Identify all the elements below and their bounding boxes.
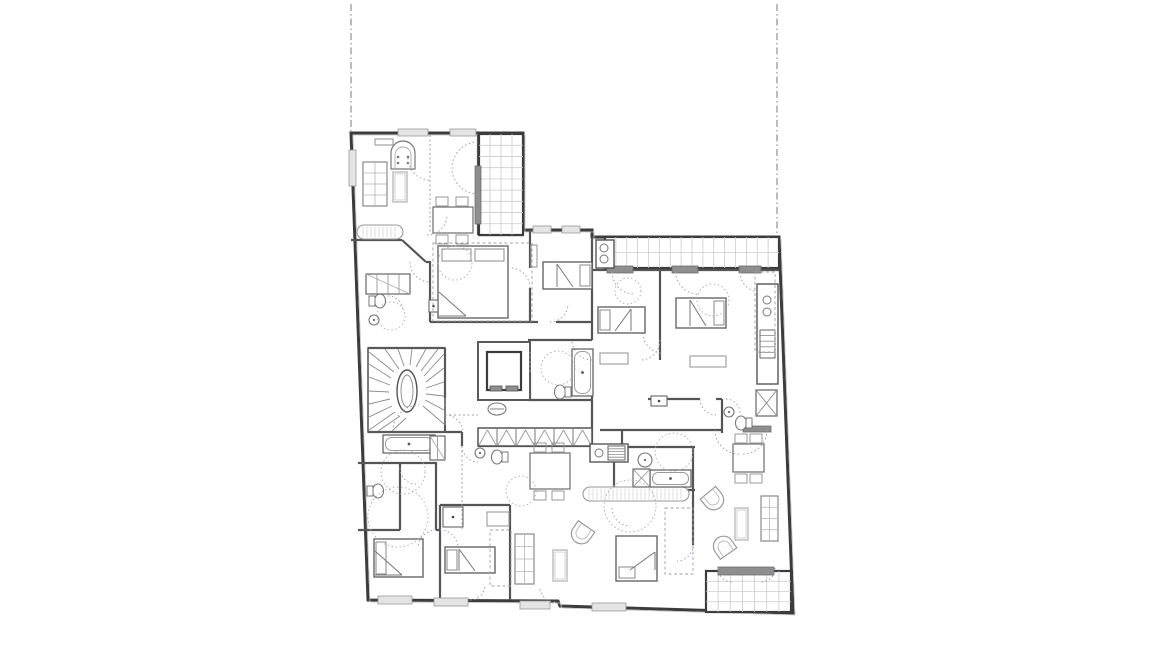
toilet-tank [502,452,508,462]
bed-single-1 [543,262,592,289]
window-sill [562,226,580,233]
bench-1 [357,225,403,239]
window-sill [349,150,356,186]
toilet-tank [746,418,752,428]
sink-drain [644,459,646,461]
sink-drain [728,411,730,413]
window-sill [378,596,412,604]
side-table-1 [600,353,628,364]
window-sill [520,601,550,609]
bed-single-3 [445,547,495,573]
tub-drain [669,477,672,480]
window-sill [475,166,481,224]
panel-dot [452,516,455,519]
bed-single-2 [598,307,645,333]
toilet-tank [565,387,571,397]
window-sill [718,567,774,575]
panel-dot [658,400,661,403]
wall-shelf-1 [375,139,393,145]
side-table-3 [487,512,509,526]
toilet-3 [555,385,566,399]
bed-double-1 [438,246,508,318]
kitchen-counter-center [590,444,628,462]
dining-table-1 [433,207,473,233]
window-sill [672,266,698,273]
elevator-door-leaf [490,386,502,391]
elevator-door-leaf [506,386,518,391]
toilet-4 [492,450,503,464]
window-sill [434,598,468,606]
stair-core [397,370,417,412]
bed-double-2 [676,298,726,328]
toilet-tank [369,296,375,306]
bed-single-4 [616,536,657,581]
window-sill [592,603,626,611]
dining-table-3 [733,444,764,472]
toilet-1 [375,294,386,308]
sink-drain [479,452,481,454]
elevator [478,342,530,400]
toilet-tank [367,486,373,496]
toilet-2 [373,484,384,498]
floor-plan [0,0,1156,650]
stove-dot [397,162,400,165]
window-sill [398,129,428,136]
dining-table-2 [530,453,570,489]
floor-plan-page [0,0,1156,650]
window-sill [533,226,551,233]
side-table-2 [690,356,726,367]
stove-dot [407,156,410,159]
tub-drain [581,371,584,374]
sink-drain [373,319,375,321]
toilet-5 [736,416,747,430]
window-sill [450,129,476,136]
stove-dot [397,156,400,159]
tub-drain [408,443,411,446]
